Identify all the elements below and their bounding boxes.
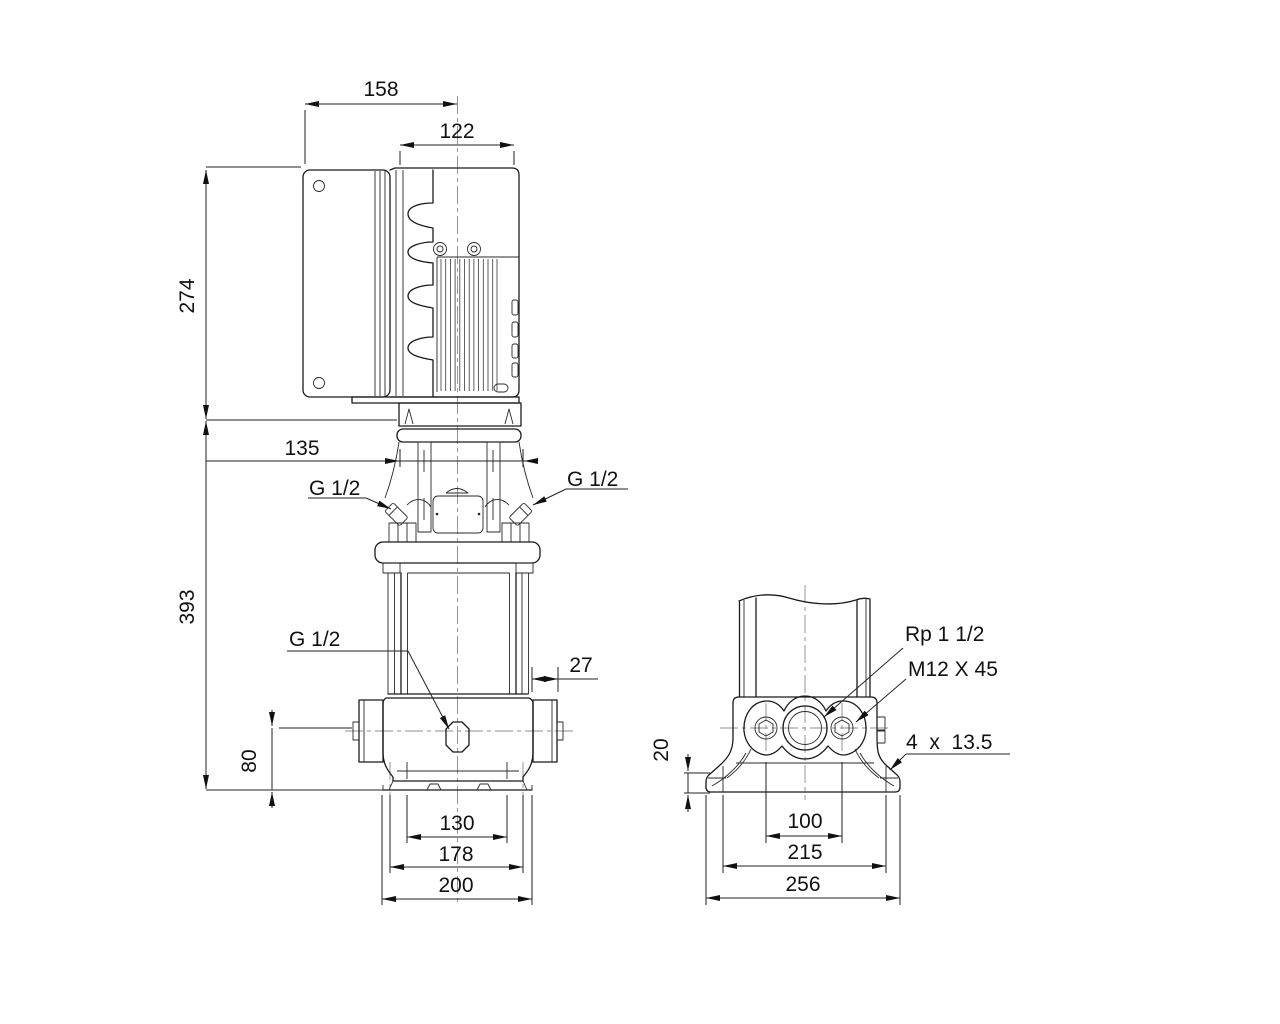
dim-130: 130 <box>439 812 474 835</box>
dim-158: 158 <box>363 78 398 101</box>
dim-274: 274 <box>176 278 199 313</box>
dim-122: 122 <box>439 120 474 143</box>
dim-393: 393 <box>176 589 199 624</box>
drawing-canvas: 158 122 274 135 393 G 1/2 G 1/2 G 1/2 80… <box>0 0 1280 1024</box>
label-slots: 4 x 13.5 <box>906 731 992 754</box>
coupling-box <box>433 496 483 533</box>
label-g12-drain: G 1/2 <box>289 628 340 651</box>
dim-215: 215 <box>787 841 822 864</box>
vent-plug-left <box>385 503 408 526</box>
motor-flange-band <box>352 397 519 403</box>
nut-left <box>389 523 416 542</box>
front-centerlines <box>345 96 573 906</box>
motor-body <box>390 168 519 397</box>
dim-135: 135 <box>284 437 319 460</box>
dim-256: 256 <box>785 873 820 896</box>
nut-right <box>502 523 529 542</box>
side-view: Rp 1 1/2 M12 X 45 4 x 13.5 20 100 215 25… <box>650 585 1010 905</box>
pipe-column <box>739 595 870 697</box>
dim-200: 200 <box>438 874 473 897</box>
dim-80: 80 <box>238 749 261 772</box>
pump-base <box>353 698 563 790</box>
label-g12-left: G 1/2 <box>309 477 360 500</box>
dim-20: 20 <box>650 738 673 761</box>
shaft-dome <box>446 489 468 494</box>
base-outline <box>706 703 900 792</box>
dim-178: 178 <box>438 843 473 866</box>
chamber <box>383 698 533 781</box>
motor-fin-profile <box>408 170 433 396</box>
lantern <box>399 403 521 426</box>
control-box <box>303 170 390 397</box>
guard-window-right <box>487 442 500 532</box>
pipe-break-wave <box>739 595 870 604</box>
side-dimensions <box>684 648 1010 905</box>
base-casting <box>706 696 900 792</box>
drain-slot <box>494 384 508 392</box>
label-rp: Rp 1 1/2 <box>905 623 984 646</box>
screw-icon <box>434 243 447 256</box>
dim-27: 27 <box>569 654 592 677</box>
label-bolt: M12 X 45 <box>908 658 998 681</box>
pump-sleeve <box>383 563 533 694</box>
technical-drawing: 158 122 274 135 393 G 1/2 G 1/2 G 1/2 80… <box>0 0 1280 1024</box>
guard-window-left <box>418 442 431 532</box>
dim-100: 100 <box>787 810 822 833</box>
box-hole-bottom <box>314 378 325 389</box>
motor-assembly <box>303 168 521 426</box>
head-plate <box>397 429 521 442</box>
box-hole-top <box>314 181 325 192</box>
label-g12-right: G 1/2 <box>567 468 618 491</box>
cooling-fins <box>441 259 497 391</box>
screw-icon <box>468 243 481 256</box>
front-view: 158 122 274 135 393 G 1/2 G 1/2 G 1/2 80… <box>176 78 628 906</box>
vent-plug-right <box>509 503 532 526</box>
